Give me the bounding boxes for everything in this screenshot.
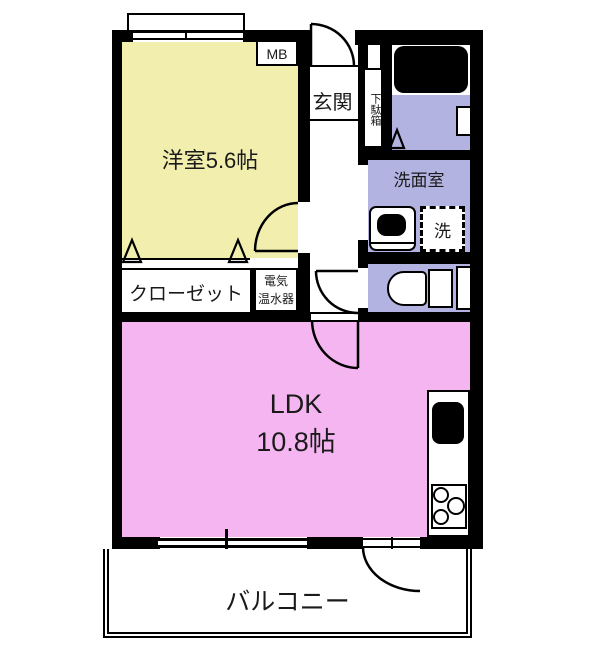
entrance-step-line-1 [310,65,358,67]
entrance-label: 玄関 [307,86,358,115]
western-room-label: 洋室5.6帖 [122,143,298,175]
water-heater-label-line1: 電気 [254,272,298,289]
floor-plan: 洋室5.6帖 MB 玄関 下駄箱 洗面室 洗 クローゼット 電気 温水器 LDK… [0,0,600,650]
wall-left [112,30,122,549]
ldk-label: LDK [122,389,470,420]
wall-bottom-b [307,537,363,549]
bath-window [456,106,470,136]
toilet-bowl [387,271,427,306]
wall-bottom-a [112,537,160,549]
window-top-inwall [133,31,243,40]
window-top-outer [127,13,245,32]
front-door-arc [311,24,354,66]
washing-machine-label: 洗 [420,217,465,242]
window-bottom [158,538,307,548]
meter-box-label: MB [256,46,298,62]
western-door-opening [298,202,310,253]
window-top-split [185,31,187,40]
wall-top-b [355,30,483,45]
wall-ldk-top-right [358,312,483,322]
stove [431,484,467,529]
wall-right [470,30,483,549]
closet-label: クローゼット [122,279,250,306]
closet-door-strip [122,258,250,270]
wall-ldk-top-left [112,312,311,322]
water-heater-label-line2: 温水器 [254,290,298,307]
wall-western-right-upper [298,30,310,202]
shoe-cabinet-label: 下駄箱 [364,76,383,142]
wall-washroom-toilet-divider [368,252,470,264]
toilet-tank [428,269,453,308]
washroom-label: 洗面室 [368,166,470,191]
entrance-step-line-2 [310,119,358,121]
ldk-door-threshold [311,312,358,322]
washbasin-bowl [377,214,406,236]
toilet-door-arc [316,271,358,313]
washbasin-line [371,242,414,244]
balcony-label: バルコニー [103,582,472,618]
wall-corridor-right-b [358,240,368,268]
ldk-size-label: 10.8帖 [122,420,470,459]
wall-bottom-c [420,537,483,549]
washroom-door-opening [358,165,368,240]
toilet-window [456,266,470,310]
bathtub [394,46,468,93]
